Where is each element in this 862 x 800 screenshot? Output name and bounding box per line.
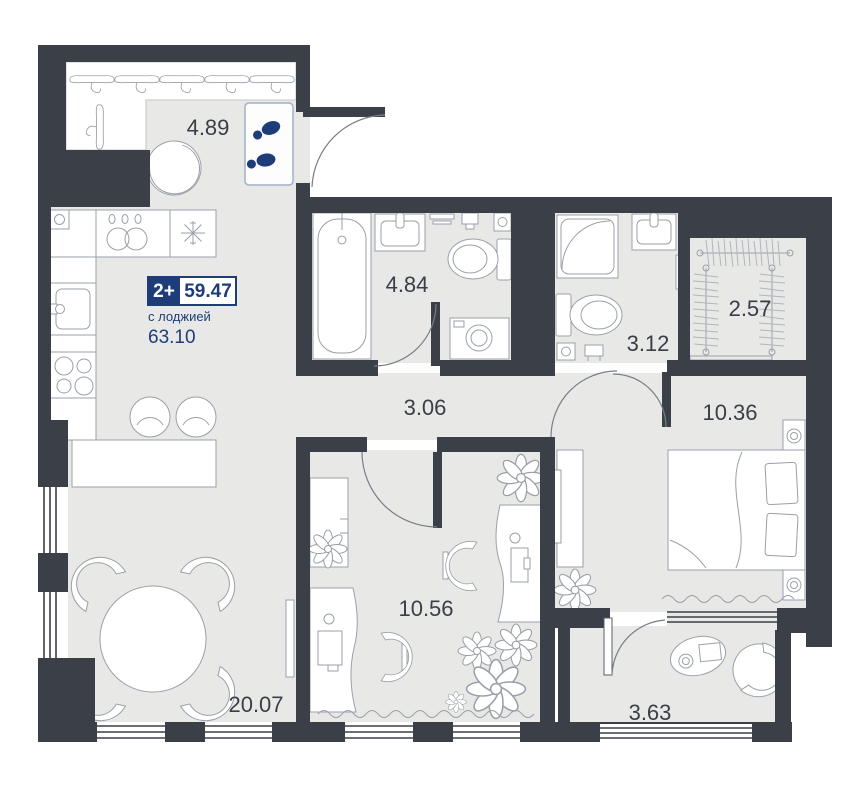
window xyxy=(38,487,68,553)
office-door-leaf xyxy=(433,452,442,528)
dining-table xyxy=(100,586,206,692)
window xyxy=(97,722,165,742)
room-label-living: 20.07 xyxy=(228,692,283,717)
wc-sink xyxy=(632,213,676,250)
area-with-loggia-value: 63.10 xyxy=(148,327,196,348)
rooms-count-badge: 2+ xyxy=(153,281,175,302)
washing-machine xyxy=(450,318,509,359)
room-label-hall: 3.06 xyxy=(404,395,447,420)
living-tv xyxy=(286,600,294,677)
desk-left xyxy=(310,588,357,712)
plant-icon xyxy=(446,692,467,713)
loggia-window xyxy=(600,724,752,742)
toilet xyxy=(448,239,511,280)
bedroom-door-leaf xyxy=(662,372,671,427)
room-label-bathroom: 4.84 xyxy=(386,272,429,297)
double-bed xyxy=(668,450,805,570)
plant-icon xyxy=(554,569,596,611)
loggia-note: с лоджией xyxy=(148,309,211,324)
bar-stool xyxy=(176,397,216,437)
pillow xyxy=(765,513,798,557)
bath-sink xyxy=(375,213,425,251)
bar-stool xyxy=(130,397,170,437)
window xyxy=(38,592,68,658)
plant-icon xyxy=(309,530,347,568)
entrance-door-arc xyxy=(312,115,385,187)
floor-plan-svg: 4.89 4.84 3.06 3.12 2.57 10.36 10.56 20.… xyxy=(0,0,862,800)
window xyxy=(205,722,272,742)
room-label-loggia: 3.63 xyxy=(629,700,672,725)
office-cabinet xyxy=(309,478,348,568)
room-label-wc: 3.12 xyxy=(627,331,670,356)
entrance-marker xyxy=(245,103,293,185)
window xyxy=(345,722,413,742)
bedroom-loggia-window xyxy=(667,608,777,628)
corner-box xyxy=(494,213,511,231)
kitchen-small-unit xyxy=(50,210,69,229)
wc-toilet xyxy=(556,294,622,336)
plant-icon xyxy=(495,624,537,666)
loggia-door-leaf xyxy=(604,618,612,675)
desk-right xyxy=(496,505,543,622)
window xyxy=(453,722,520,742)
room-label-office: 10.56 xyxy=(398,596,453,621)
plant-icon xyxy=(467,660,526,719)
pillow xyxy=(765,462,798,505)
room-label-bedroom: 10.36 xyxy=(702,400,757,425)
floor-plan: 4.89 4.84 3.06 3.12 2.57 10.36 10.56 20.… xyxy=(0,0,862,800)
entrance-door-leaf xyxy=(303,107,385,117)
shower xyxy=(557,215,618,278)
total-area-value: 59.47 xyxy=(184,281,232,302)
fridge-snowflake-icon xyxy=(181,221,205,245)
nightstand xyxy=(783,420,805,452)
room-label-hallway: 4.89 xyxy=(187,115,230,140)
kitchen-island xyxy=(72,440,216,487)
plant-icon xyxy=(497,454,545,502)
room-label-wardrobe: 2.57 xyxy=(729,296,772,321)
